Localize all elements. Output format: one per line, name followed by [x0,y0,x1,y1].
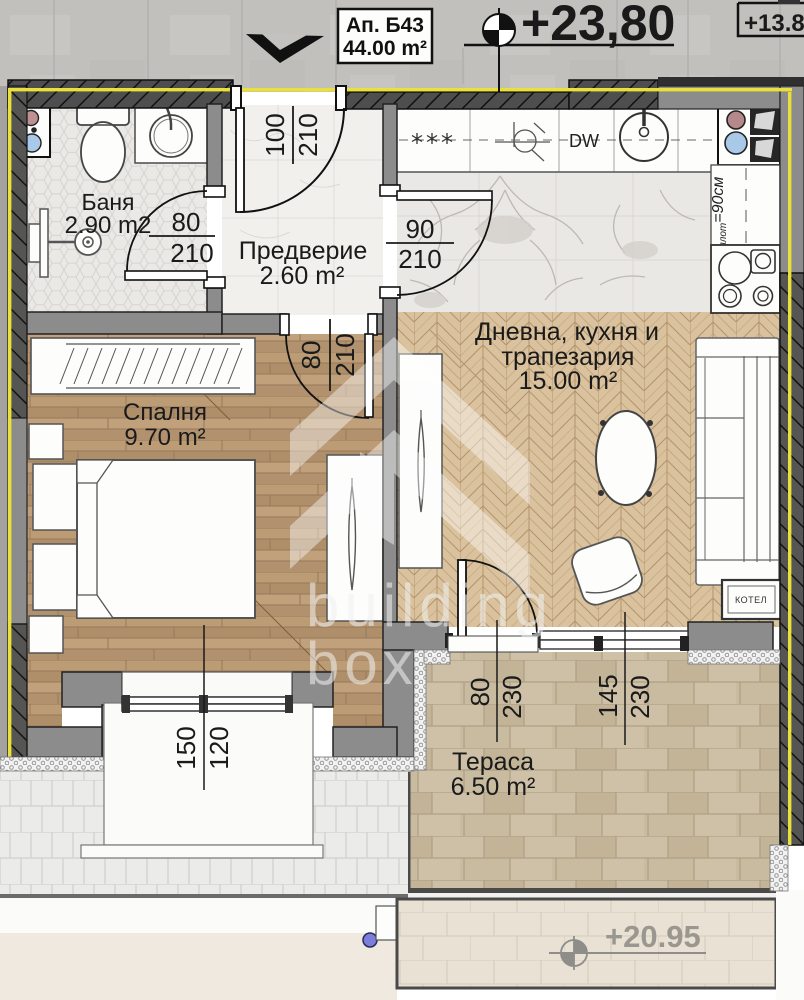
svg-text:44.00 m²: 44.00 m² [343,37,427,60]
svg-text:9.70 m²: 9.70 m² [124,424,205,451]
svg-text:210: 210 [330,333,360,376]
svg-text:Предверие: Предверие [239,237,368,265]
svg-text:+23,80: +23,80 [521,0,675,51]
svg-text:145: 145 [593,674,623,717]
svg-text:DW: DW [569,131,599,151]
svg-text:КОТЕЛ: КОТЕЛ [735,595,767,605]
svg-text:15.00 m²: 15.00 m² [519,367,618,395]
svg-text:+20.95: +20.95 [605,919,701,954]
svg-text:building: building [306,572,553,639]
svg-text:2.90 m2: 2.90 m2 [65,212,152,239]
svg-text:Тераса: Тераса [452,748,534,776]
svg-text:+13.8: +13.8 [744,10,804,37]
svg-text:2.60 m²: 2.60 m² [260,262,345,290]
svg-text:210: 210 [293,113,323,156]
svg-text:230: 230 [625,675,655,718]
svg-text:80: 80 [172,207,201,237]
svg-text:90: 90 [406,214,435,244]
svg-text:80: 80 [465,678,495,707]
svg-text:120: 120 [204,726,234,769]
svg-text:210: 210 [170,238,213,268]
svg-text:6.50 m²: 6.50 m² [451,773,536,801]
svg-text:100: 100 [260,113,290,156]
svg-text:Спалня: Спалня [123,399,207,426]
svg-text:150: 150 [171,726,201,769]
svg-text:210: 210 [398,244,441,274]
svg-text:230: 230 [497,675,527,718]
svg-text:box: box [306,630,418,697]
svg-text:80: 80 [296,341,326,370]
svg-text:Дневна, кухня и: Дневна, кухня и [475,318,659,346]
svg-text:Ап. Б43: Ап. Б43 [346,14,424,37]
